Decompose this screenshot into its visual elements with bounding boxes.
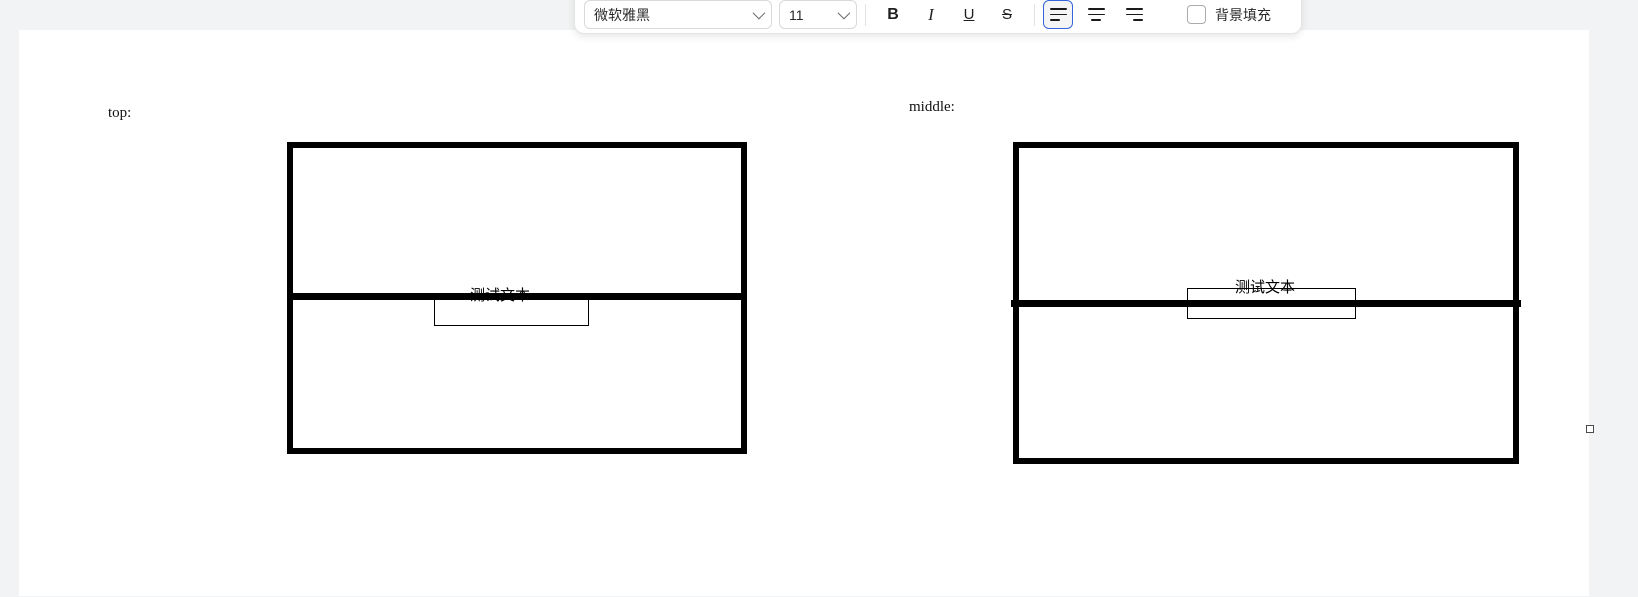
bold-button[interactable]: B bbox=[874, 0, 912, 29]
align-center-button[interactable] bbox=[1081, 0, 1111, 29]
format-toolbar: 微软雅黑 11 B I U S bbox=[574, 0, 1302, 34]
resize-handle[interactable] bbox=[1586, 425, 1594, 433]
divider-line-top bbox=[287, 293, 747, 300]
chevron-down-icon bbox=[753, 7, 766, 20]
italic-button[interactable]: I bbox=[912, 0, 950, 29]
align-left-button[interactable] bbox=[1043, 0, 1073, 29]
align-right-button[interactable] bbox=[1119, 0, 1149, 29]
toolbar-row: 微软雅黑 11 B I U S bbox=[584, 0, 1291, 29]
font-family-select[interactable]: 微软雅黑 bbox=[584, 0, 772, 29]
align-center-icon bbox=[1088, 8, 1105, 20]
font-size-select[interactable]: 11 bbox=[779, 0, 857, 29]
background-fill-label: 背景填充 bbox=[1215, 5, 1271, 25]
align-right-icon bbox=[1126, 8, 1143, 20]
section-label-top: top: bbox=[108, 105, 131, 122]
section-label-middle: middle: bbox=[909, 99, 955, 116]
background-fill-checkbox[interactable] bbox=[1187, 5, 1206, 24]
divider-line-middle bbox=[1011, 300, 1521, 307]
toolbar-divider bbox=[1034, 4, 1035, 26]
chevron-down-icon bbox=[838, 7, 851, 20]
text-box-middle-text: 测试文本 bbox=[1235, 280, 1295, 295]
font-size-value: 11 bbox=[789, 7, 804, 23]
underline-button[interactable]: U bbox=[950, 0, 988, 29]
align-left-icon bbox=[1050, 8, 1067, 20]
strikethrough-button[interactable]: S bbox=[988, 0, 1026, 29]
toolbar-divider bbox=[865, 4, 866, 26]
screen: 微软雅黑 11 B I U S bbox=[0, 0, 1638, 597]
font-family-value: 微软雅黑 bbox=[594, 5, 650, 25]
